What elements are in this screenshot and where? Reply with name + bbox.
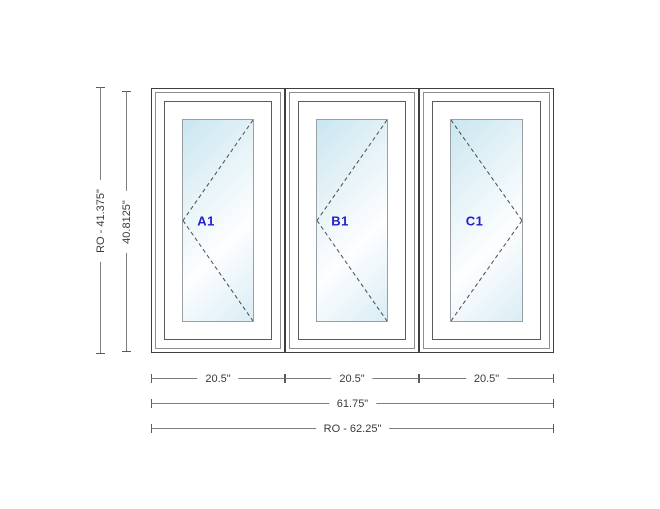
- panel-b1-sash: B1: [298, 101, 406, 340]
- dim-tick-bottom: [96, 353, 105, 354]
- dim-frame-width: 61.75": [151, 399, 554, 408]
- panel-a1-glass: A1: [182, 119, 254, 322]
- dim-width-panel-a1: 20.5": [151, 374, 285, 383]
- dim-label-frame-width: 61.75": [329, 397, 376, 411]
- dim-label-rough-opening-width: RO - 62.25": [316, 422, 390, 436]
- panel-a1-sash: A1: [164, 101, 272, 340]
- window-panel-c1[interactable]: C1: [419, 88, 554, 353]
- panel-c1-sash: C1: [432, 101, 541, 340]
- panel-c1-glass: C1: [450, 119, 523, 322]
- panel-label-a1: A1: [197, 213, 215, 228]
- dim-width-panel-c1: 20.5": [419, 374, 554, 383]
- dim-label-width-b1: 20.5": [331, 372, 372, 386]
- dim-tick-bottom: [122, 351, 131, 352]
- dim-frame-height: 40.8125": [122, 91, 131, 352]
- dim-tick-right: [553, 374, 554, 383]
- dim-label-width-c1: 20.5": [466, 372, 507, 386]
- swing-direction-lines-b1: [317, 120, 387, 321]
- dim-label-rough-opening-height: RO - 41.375": [94, 180, 108, 262]
- swing-direction-lines-c1: [451, 120, 522, 321]
- window-drawing-canvas: RO - 41.375" 40.8125" A1: [0, 0, 660, 509]
- panel-b1-glass: B1: [316, 119, 388, 322]
- dim-width-panel-b1: 20.5": [285, 374, 419, 383]
- window-panel-b1[interactable]: B1: [285, 88, 419, 353]
- swing-direction-lines-a1: [183, 120, 253, 321]
- panel-label-c1: C1: [466, 213, 484, 228]
- dim-tick-right: [553, 424, 554, 433]
- dim-rough-opening-height: RO - 41.375": [96, 87, 105, 354]
- dim-rough-opening-width: RO - 62.25": [151, 424, 554, 433]
- dim-label-frame-height: 40.8125": [120, 191, 134, 253]
- window-panel-a1[interactable]: A1: [151, 88, 285, 353]
- panel-label-b1: B1: [331, 213, 349, 228]
- dim-tick-right: [553, 399, 554, 408]
- dim-label-width-a1: 20.5": [197, 372, 238, 386]
